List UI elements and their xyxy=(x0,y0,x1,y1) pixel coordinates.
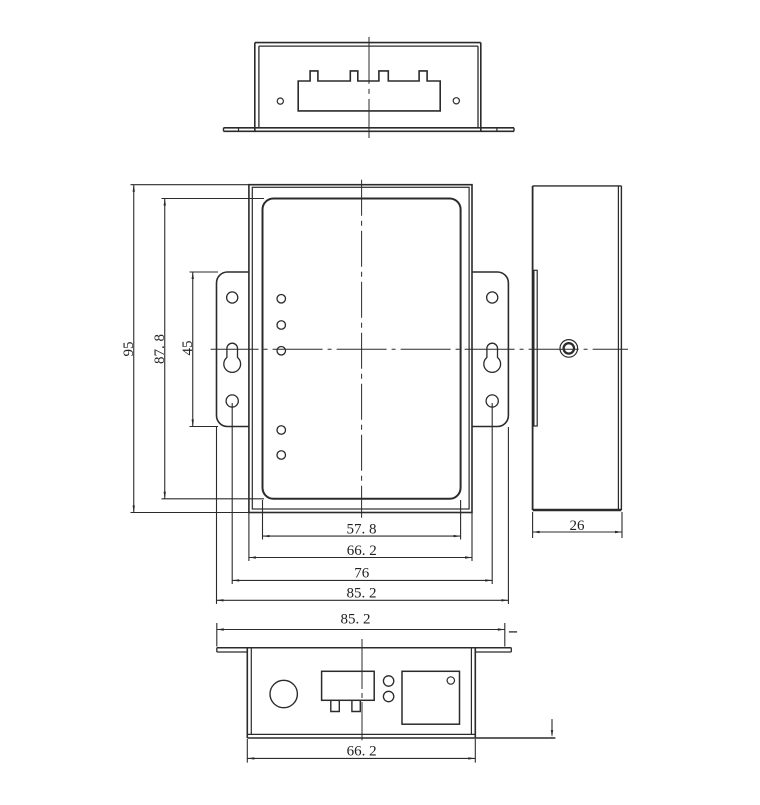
svg-text:66. 2: 66. 2 xyxy=(347,743,377,759)
svg-text:45: 45 xyxy=(180,341,196,356)
svg-text:76: 76 xyxy=(354,565,370,581)
svg-text:87. 8: 87. 8 xyxy=(152,334,168,364)
svg-text:85. 2: 85. 2 xyxy=(341,611,371,627)
svg-text:95: 95 xyxy=(121,342,137,357)
svg-text:66. 2: 66. 2 xyxy=(347,543,377,559)
svg-text:26: 26 xyxy=(570,518,586,534)
svg-text:85. 2: 85. 2 xyxy=(347,586,377,602)
svg-text:57. 8: 57. 8 xyxy=(347,522,377,538)
